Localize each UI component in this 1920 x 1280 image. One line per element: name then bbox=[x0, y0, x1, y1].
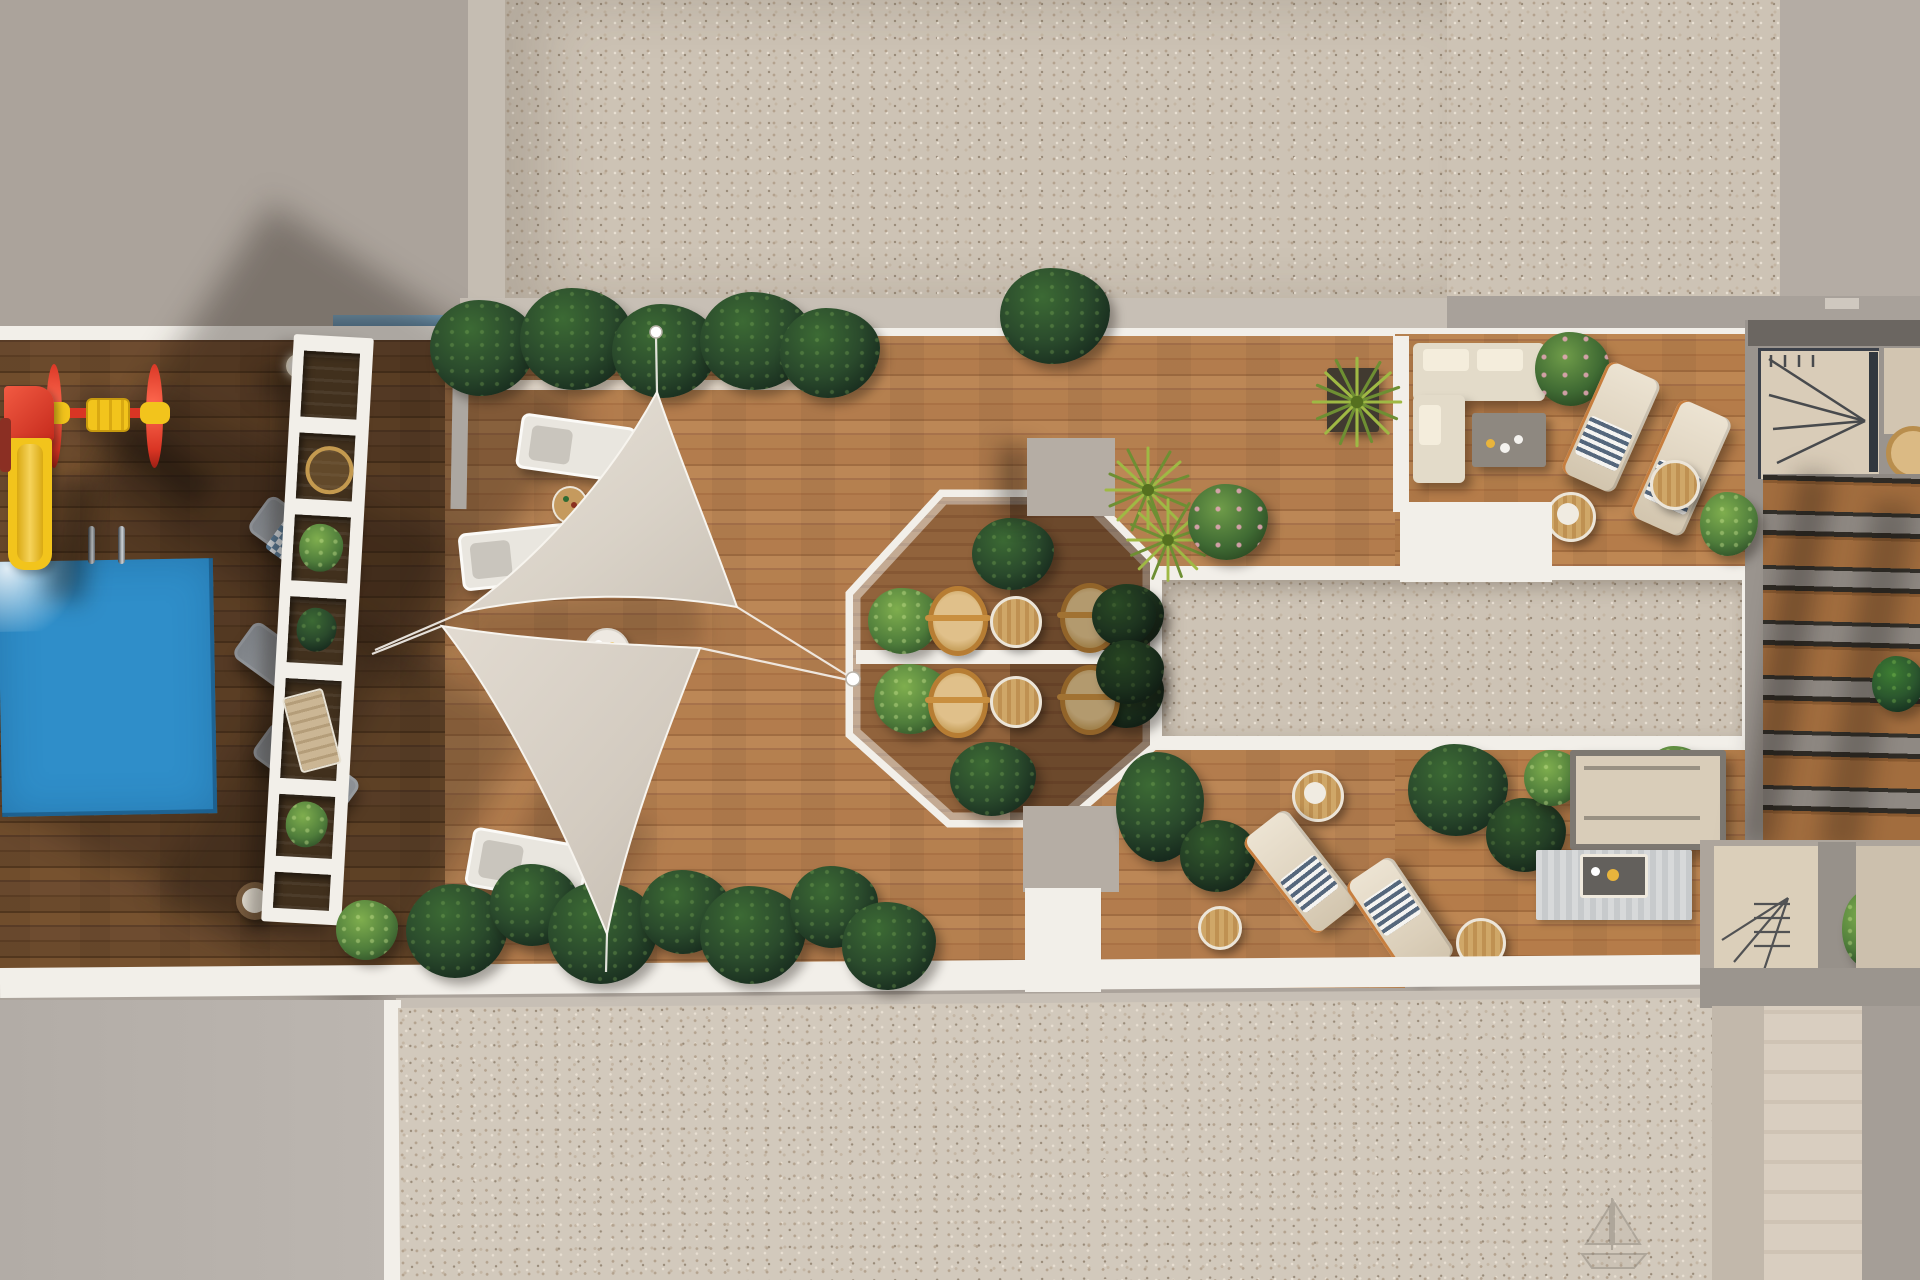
bottom-gravel-roof bbox=[398, 998, 1730, 1280]
tray bbox=[1304, 782, 1326, 804]
rattan-chair-1 bbox=[928, 586, 988, 656]
neighbor-walkway bbox=[1700, 968, 1920, 1008]
octagon-table-bottom bbox=[990, 676, 1042, 728]
neighbor-panel bbox=[1884, 348, 1920, 434]
neighbor-gray-corner bbox=[1862, 1006, 1920, 1280]
lounge-side-table-2 bbox=[1546, 492, 1596, 542]
bottom-left-ground bbox=[0, 1000, 396, 1280]
neighbor-panel-2 bbox=[1856, 846, 1920, 974]
neighbor-tan-strip bbox=[1712, 1006, 1764, 1280]
white-lounger-2 bbox=[457, 522, 574, 591]
corner-sofa-top bbox=[1413, 343, 1545, 401]
bridge-shadow-top bbox=[1000, 446, 1030, 516]
sailboat-watermark bbox=[1568, 1192, 1658, 1280]
stairs-top-fan bbox=[1761, 351, 1879, 479]
stairs-top-platform bbox=[1758, 348, 1879, 479]
cabana-table bbox=[1580, 854, 1648, 898]
br-stool bbox=[1198, 906, 1242, 950]
sofa-cushion bbox=[1477, 349, 1523, 371]
yucca-plant-3 bbox=[1305, 350, 1409, 454]
plate bbox=[1591, 867, 1600, 876]
tray bbox=[1557, 503, 1579, 525]
lounge-side-table-1 bbox=[1650, 460, 1700, 510]
rooftop-terrace-render bbox=[0, 0, 1920, 1280]
br-table-1 bbox=[1292, 770, 1344, 822]
stairs-top-rail bbox=[1869, 352, 1878, 472]
neighbor-roof-edge bbox=[1748, 320, 1920, 346]
side-table-small bbox=[552, 486, 588, 524]
rattan-chair-3 bbox=[928, 668, 988, 738]
plate bbox=[594, 640, 603, 649]
bottle bbox=[571, 502, 577, 508]
stairs-bottom-platform bbox=[1714, 846, 1820, 976]
sail-center-table bbox=[584, 628, 630, 674]
coffee-table bbox=[1472, 413, 1546, 467]
walkway-notch bbox=[1400, 502, 1552, 582]
sofa-cushion bbox=[1419, 405, 1441, 445]
corner-sofa-side bbox=[1413, 395, 1465, 483]
fruit-bowl bbox=[1607, 869, 1619, 881]
neighbor-path bbox=[1764, 1006, 1862, 1280]
plate bbox=[601, 653, 609, 661]
table-item bbox=[1486, 439, 1495, 448]
cabana bbox=[1570, 750, 1726, 850]
gray-bridge-bottom bbox=[1023, 806, 1119, 892]
cabana-slat bbox=[1584, 816, 1700, 820]
cabana-slat bbox=[1584, 766, 1700, 770]
sofa-cushion bbox=[1423, 349, 1469, 371]
drink bbox=[608, 642, 616, 650]
stairs-bottom-fan bbox=[1714, 846, 1820, 976]
octagon-table-top bbox=[990, 596, 1042, 648]
lounger-towel bbox=[1574, 415, 1633, 472]
bottle bbox=[563, 496, 569, 502]
table-item bbox=[1500, 443, 1510, 453]
slat-plant-2 bbox=[1872, 656, 1920, 712]
table-item bbox=[1514, 435, 1523, 444]
